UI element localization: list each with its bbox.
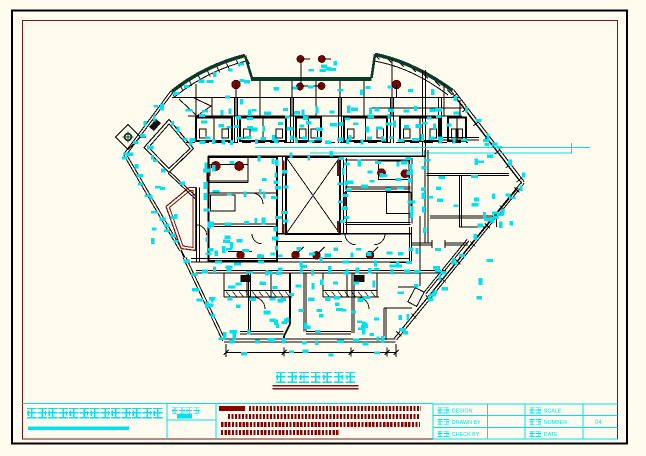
svg-text:DESIGN: DESIGN: [452, 408, 473, 414]
svg-text:SCALE: SCALE: [544, 408, 562, 414]
svg-text:04: 04: [595, 420, 602, 426]
svg-text:NUMBER: NUMBER: [544, 420, 567, 426]
svg-text:CHECK BY: CHECK BY: [452, 432, 480, 438]
svg-text:DATE: DATE: [544, 432, 558, 438]
svg-text:DRAWN BY: DRAWN BY: [452, 420, 481, 426]
